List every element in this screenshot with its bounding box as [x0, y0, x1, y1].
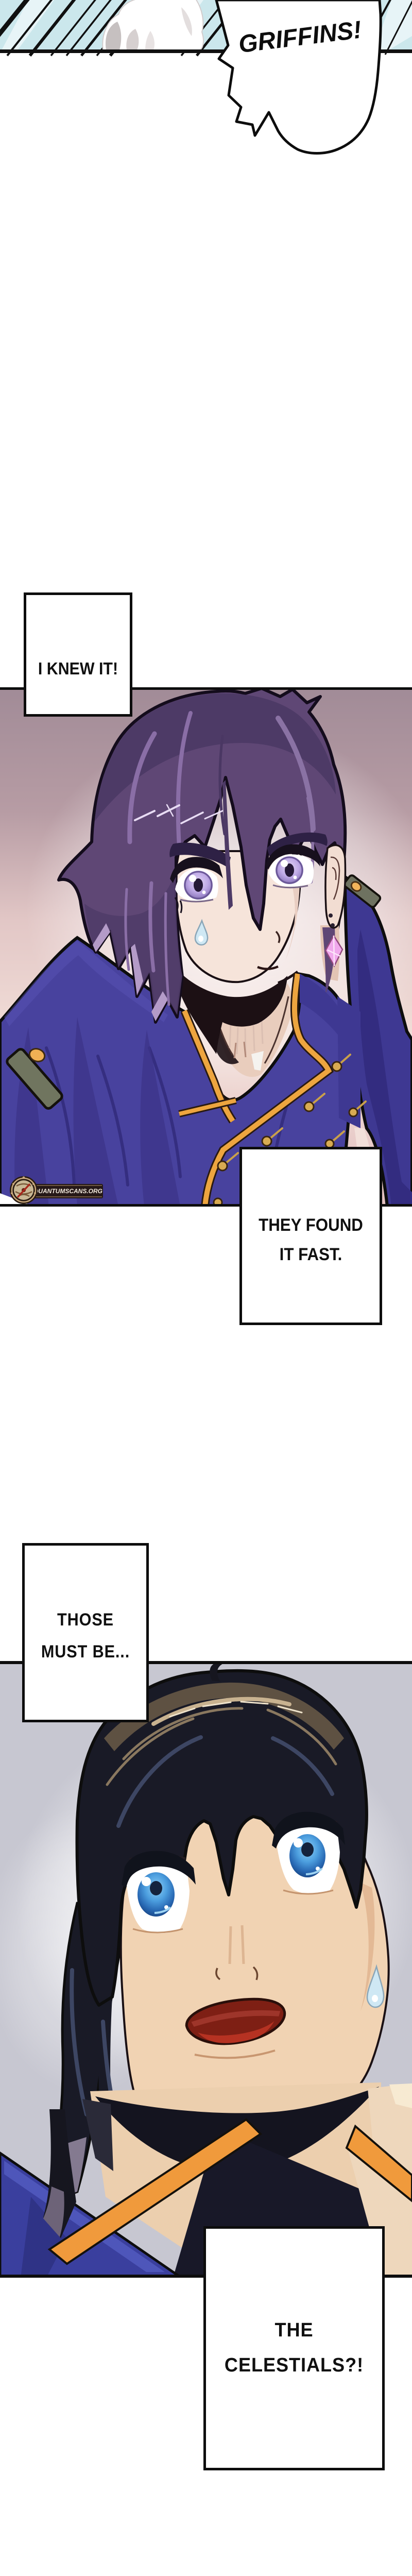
svg-text:QUANTUMSCANS.ORG: QUANTUMSCANS.ORG [33, 1188, 102, 1195]
